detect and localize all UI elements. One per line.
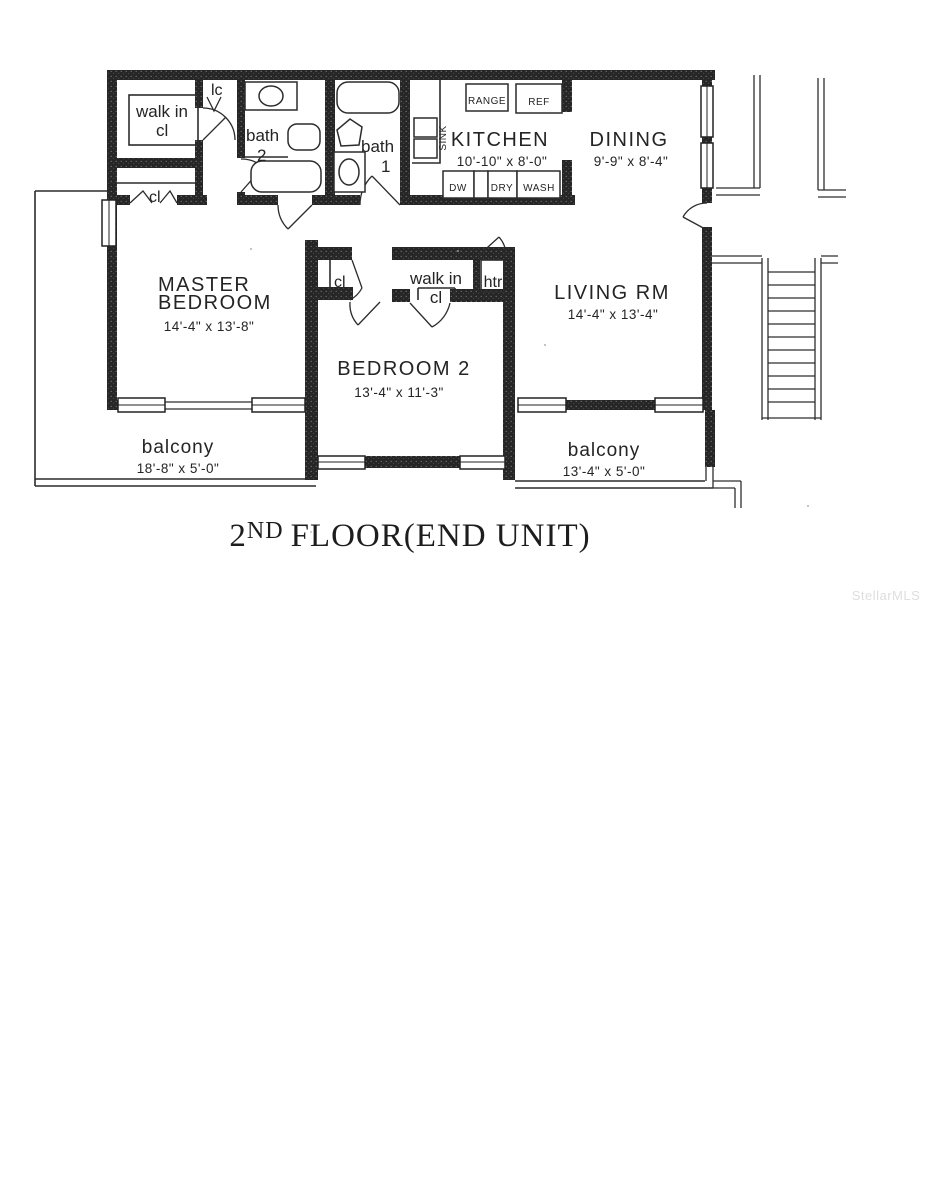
dining-label: DINING — [590, 129, 669, 151]
master-bottom-sill — [165, 402, 252, 409]
bedroom2-closet-label: cl — [334, 274, 346, 291]
toilet-bowl — [339, 159, 359, 185]
heater-closet-label: htr — [484, 274, 503, 291]
window-symbol — [701, 143, 713, 188]
door-arc — [360, 176, 400, 205]
sink-basin — [259, 86, 283, 106]
dryer-label: DRY — [491, 183, 513, 194]
walkin-bedroom2-label-1: walk in — [409, 269, 462, 288]
door-arc — [203, 108, 235, 140]
sink-basin — [414, 118, 437, 137]
floor-plan-drawing: walk in cl lc cl bath 2 bath 1 KITCHEN 1… — [0, 0, 927, 1200]
sink-label: SINK — [438, 125, 449, 150]
adjacent-walls — [716, 75, 846, 197]
dishwasher-label: DW — [449, 183, 467, 194]
cabinet-box — [474, 171, 488, 198]
watermark: StellarMLS — [852, 588, 921, 603]
refrigerator-label: REF — [528, 97, 550, 108]
sink-basin — [414, 139, 437, 158]
window-symbol — [701, 86, 713, 137]
bath2-number: 2 — [257, 146, 266, 165]
bedroom2-label: BEDROOM 2 — [337, 358, 471, 380]
living-dims: 14'-4" x 13'-4" — [568, 307, 659, 322]
living-label: LIVING RM — [554, 282, 670, 304]
window-symbol — [102, 200, 116, 246]
floor-plan-page: walk in cl lc cl bath 2 bath 1 KITCHEN 1… — [0, 0, 927, 1200]
walkin-bedroom2-label-2: cl — [430, 288, 442, 307]
sink — [337, 119, 362, 146]
balcony-right-label: balcony — [568, 440, 641, 461]
hall-closet-label: cl — [149, 189, 161, 206]
bathtub — [251, 161, 321, 192]
window-symbol — [518, 398, 566, 412]
door-arc — [350, 302, 380, 325]
dining-dims: 9'-9" x 8'-4" — [594, 154, 669, 169]
master-label-2: BEDROOM — [158, 292, 272, 314]
master-dims: 14'-4" x 13'-8" — [164, 319, 255, 334]
window-symbol — [318, 456, 365, 469]
washer-label: WASH — [523, 183, 555, 194]
balcony-left-label: balcony — [142, 437, 215, 458]
bath2-label: bath — [246, 126, 279, 145]
door-arc — [683, 203, 707, 230]
kitchen-label: KITCHEN — [451, 129, 549, 151]
window-symbol — [118, 398, 165, 412]
walkin-master-label-2: cl — [156, 121, 168, 140]
bath1-label: bath — [361, 137, 394, 156]
range-label: RANGE — [468, 96, 506, 107]
bath1-number: 1 — [381, 157, 390, 176]
door-arc — [278, 205, 312, 229]
toilet — [288, 124, 320, 150]
balcony-right-dims: 13'-4" x 5'-0" — [563, 464, 646, 479]
kitchen-dims: 10'-10" x 8'-0" — [457, 154, 548, 169]
page-title: 2NDFLOOR(END UNIT) — [229, 518, 590, 554]
window-symbol — [655, 398, 703, 412]
window-symbol — [252, 398, 305, 412]
bathtub — [337, 82, 399, 113]
linen-closet-label: lc — [211, 82, 223, 99]
window-symbol — [460, 456, 505, 469]
staircase — [712, 256, 838, 420]
bedroom2-dims: 13'-4" x 11'-3" — [354, 385, 444, 400]
walkin-master-label-1: walk in — [135, 102, 188, 121]
balcony-left-dims: 18'-8" x 5'-0" — [137, 461, 220, 476]
